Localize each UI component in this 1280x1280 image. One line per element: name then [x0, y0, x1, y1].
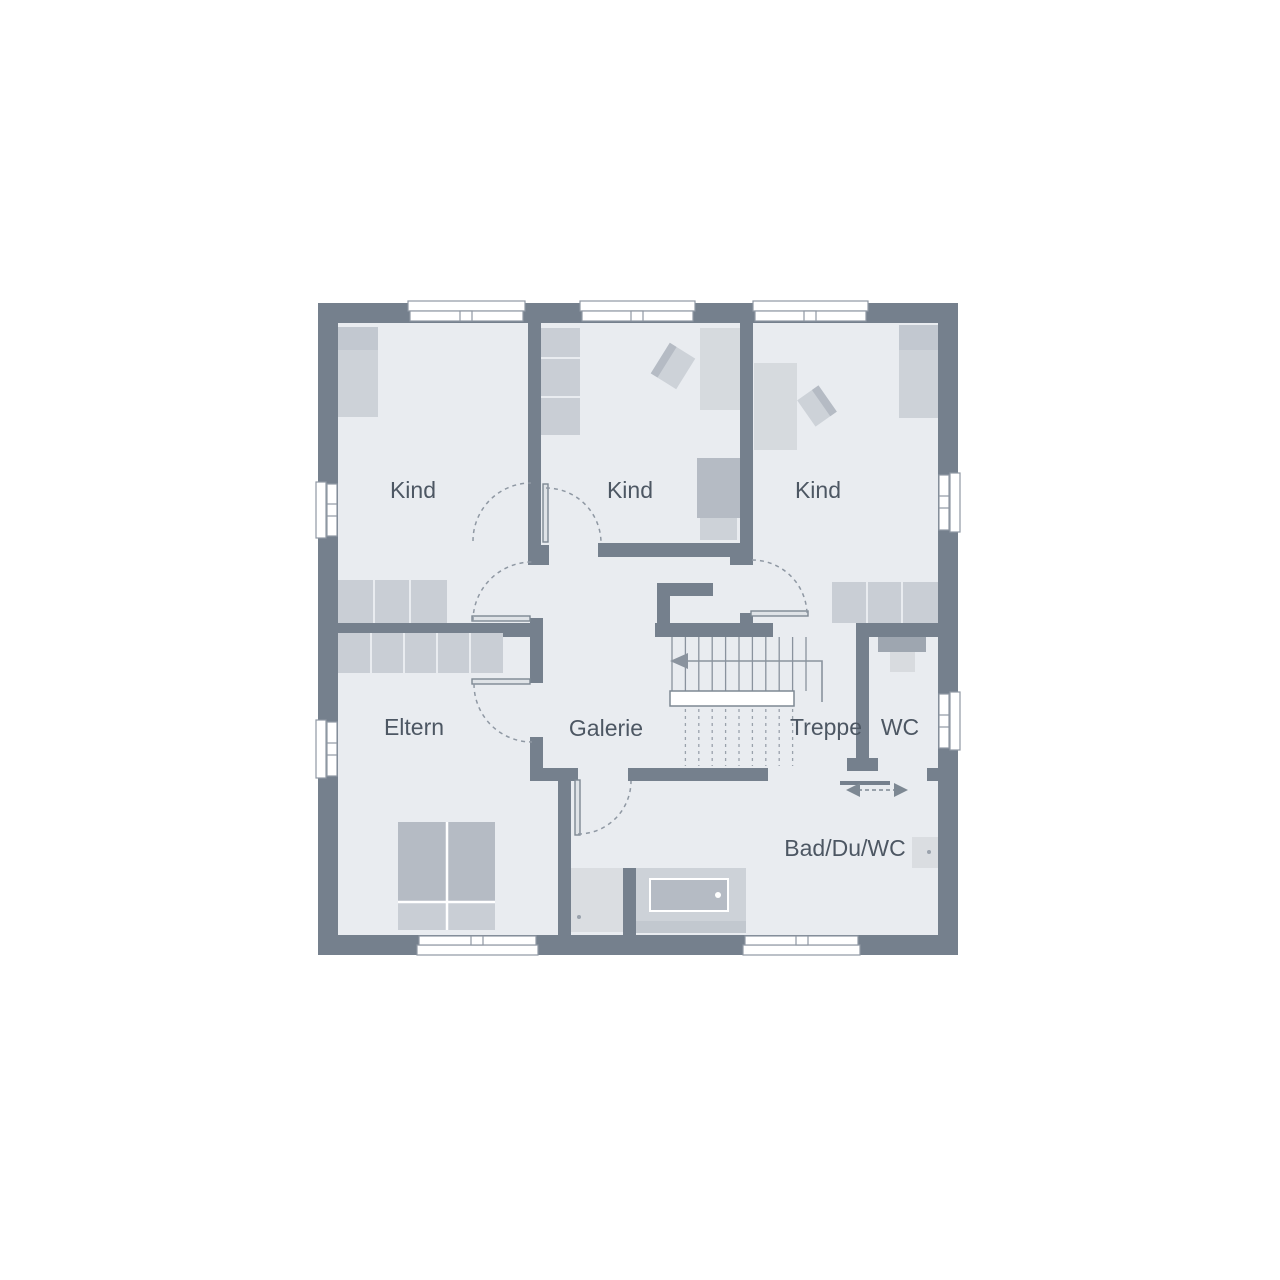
wardrobe — [338, 633, 503, 673]
room-label-bad: Bad/Du/WC — [784, 835, 905, 861]
door-leaf — [575, 780, 580, 835]
bed — [338, 350, 378, 417]
wall-kind2-kind3 — [740, 323, 753, 545]
bed-pillow — [338, 327, 378, 350]
room-label-kind-2: Kind — [607, 477, 653, 503]
wall-below-kind2 — [598, 543, 740, 557]
room-label-eltern: Eltern — [384, 714, 444, 740]
window-icon — [939, 473, 960, 532]
door-leaf — [751, 611, 808, 616]
window-icon — [316, 482, 337, 538]
door-leaf — [543, 484, 548, 542]
bed-pillow — [700, 518, 737, 540]
shower — [571, 868, 623, 932]
room-label-kind-3: Kind — [795, 477, 841, 503]
bed — [899, 350, 938, 418]
drain-icon — [577, 915, 581, 919]
floor-plan-canvas: Kind Kind Kind Eltern Galerie Treppe WC … — [0, 0, 1280, 1280]
wall-eltern-east-lower — [558, 781, 571, 935]
wall-stub — [730, 545, 753, 565]
bed — [697, 458, 740, 518]
wall-bath-northwest — [530, 768, 578, 781]
window-icon — [939, 692, 960, 750]
drain-icon — [715, 892, 721, 898]
drain-icon — [927, 850, 931, 854]
wall-galerie-bath — [628, 768, 768, 781]
room-label-kind-1: Kind — [390, 477, 436, 503]
sliding-door-panel — [840, 781, 890, 785]
window-icon — [417, 936, 538, 955]
wall-above-stairs — [655, 623, 773, 637]
room-label-galerie: Galerie — [569, 715, 643, 741]
window-icon — [408, 301, 525, 321]
wall-wc-foot — [847, 758, 878, 771]
wall-wc-stub — [927, 768, 938, 781]
floor-plan: Kind Kind Kind Eltern Galerie Treppe WC … — [0, 0, 1280, 1280]
toilet-tank — [878, 637, 926, 652]
window-icon — [743, 936, 860, 955]
stair-handrail — [670, 691, 794, 706]
shower — [912, 837, 938, 868]
stairwell-guard-side — [657, 583, 670, 637]
wall-bath-divider — [623, 868, 636, 935]
rug — [754, 363, 797, 450]
wall-galerie-west — [530, 618, 543, 683]
wall-above-wc — [856, 623, 938, 637]
window-icon — [580, 301, 695, 321]
bathtub-step — [636, 921, 746, 933]
wardrobe — [832, 582, 938, 623]
wardrobe — [338, 580, 447, 623]
bed-pillow — [899, 325, 938, 350]
room-label-wc: WC — [881, 714, 919, 740]
toilet-bowl — [890, 652, 915, 672]
door-leaf — [472, 679, 530, 684]
window-icon — [316, 720, 337, 778]
door-leaf — [472, 616, 530, 621]
window-icon — [753, 301, 868, 321]
wall-kind1-kind2 — [528, 323, 541, 545]
wardrobe — [541, 328, 580, 435]
room-label-treppe: Treppe — [790, 714, 862, 740]
sideboard — [700, 328, 740, 410]
